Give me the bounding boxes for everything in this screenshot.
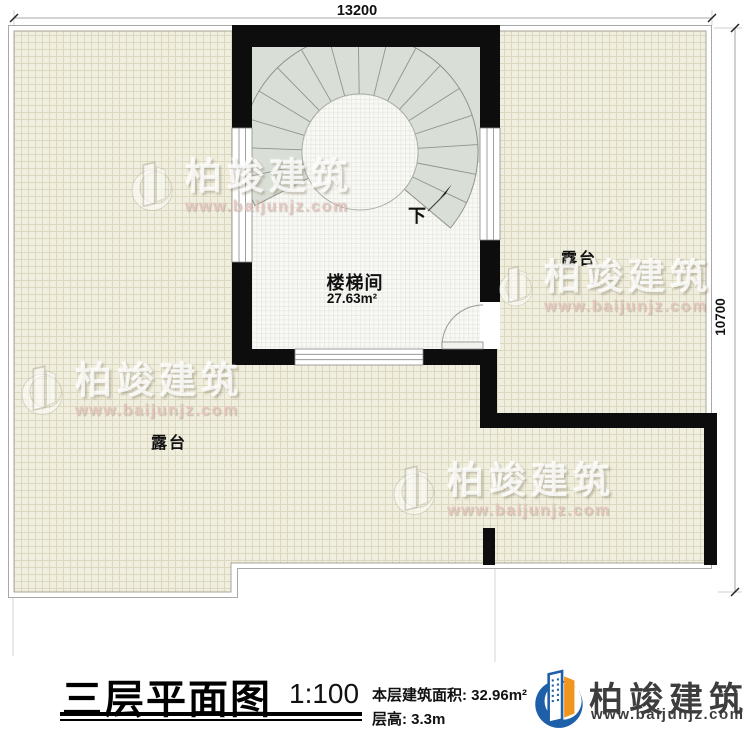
dimension-top: 13200 xyxy=(10,3,716,25)
company-logo-icon xyxy=(533,666,587,732)
dim-top-label: 13200 xyxy=(337,3,377,19)
drawing-scale: 1:100 xyxy=(289,678,359,710)
window-left xyxy=(232,128,252,262)
room-area-stairwell: 27.63m² xyxy=(327,291,378,306)
title-underline xyxy=(60,712,362,716)
window-bottom xyxy=(295,349,423,365)
page-title: 三层平面图 xyxy=(62,667,272,725)
dim-right-label: 10700 xyxy=(713,298,728,336)
door-leaf xyxy=(442,342,483,349)
stair-down-label: 下 xyxy=(408,206,426,226)
room-label-terrace-left: 露台 xyxy=(151,433,187,452)
title-underline xyxy=(60,719,362,721)
company-website: www.baijunjz.com xyxy=(591,706,744,723)
floorplan-page: 下 13200 10700 楼梯间 27.63m² 露台 露台 xyxy=(0,0,750,740)
floor-area-info: 本层建筑面积: 32.96m² xyxy=(372,684,527,705)
floor-height-info: 层高: 3.3m xyxy=(372,708,445,729)
dimension-right: 10700 xyxy=(713,24,742,596)
room-label-terrace-right: 露台 xyxy=(561,249,597,268)
floor-plan-drawing: 下 13200 10700 楼梯间 27.63m² 露台 露台 xyxy=(0,0,750,662)
room-label-stairwell: 楼梯间 xyxy=(327,272,384,293)
window-right xyxy=(480,128,500,240)
stair-well-opening xyxy=(302,94,418,210)
